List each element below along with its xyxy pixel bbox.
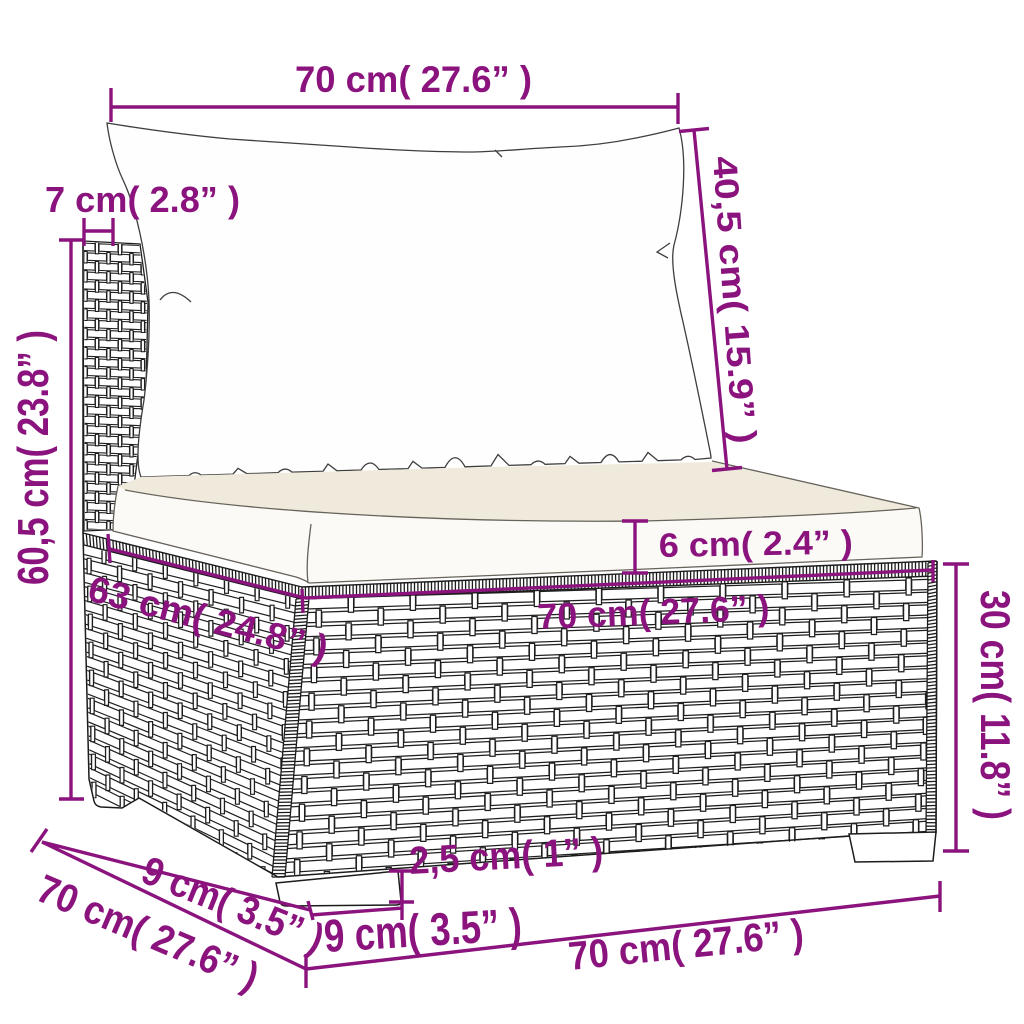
- svg-text:2,5 cm( 1” ): 2,5 cm( 1” ): [408, 830, 604, 883]
- svg-text:6 cm( 2.4” ): 6 cm( 2.4” ): [658, 524, 853, 565]
- svg-text:60,5 cm( 23.8” ): 60,5 cm( 23.8” ): [9, 330, 58, 585]
- svg-text:30 cm( 11.8” ): 30 cm( 11.8” ): [972, 590, 1019, 820]
- svg-text:9 cm( 3.5” ): 9 cm( 3.5” ): [322, 898, 523, 962]
- svg-text:40,5 cm( 15.9” ): 40,5 cm( 15.9” ): [705, 155, 763, 445]
- svg-text:70 cm( 27.6” ): 70 cm( 27.6” ): [566, 911, 805, 979]
- svg-text:70 cm( 27.6” ): 70 cm( 27.6” ): [295, 59, 532, 100]
- svg-text:7 cm( 2.8” ): 7 cm( 2.8” ): [45, 179, 240, 220]
